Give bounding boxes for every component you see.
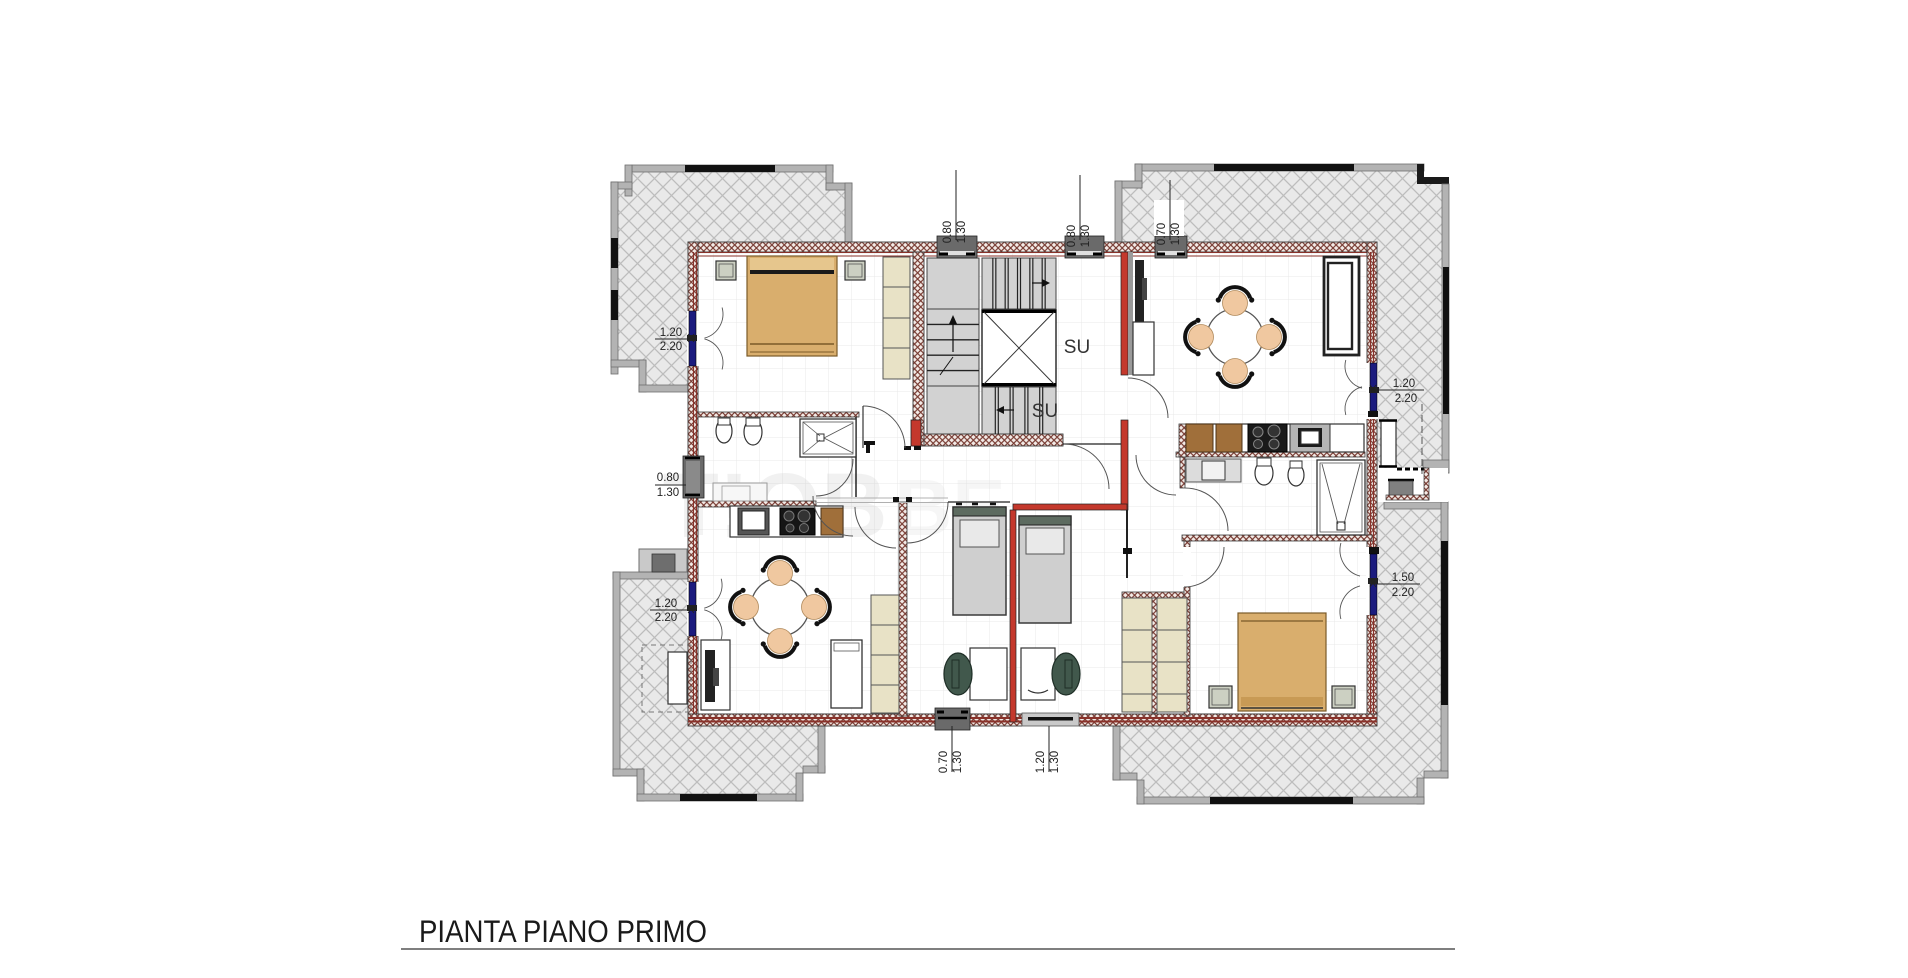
svg-text:SU: SU xyxy=(1064,337,1090,358)
svg-text:1.20: 1.20 xyxy=(1393,378,1415,390)
svg-text:1.30: 1.30 xyxy=(1170,223,1182,245)
svg-text:PIANTA PIANO PRIMO: PIANTA PIANO PRIMO xyxy=(419,913,707,949)
svg-text:0.80: 0.80 xyxy=(657,472,679,484)
svg-text:1.20: 1.20 xyxy=(660,327,682,339)
svg-text:1.30: 1.30 xyxy=(952,751,964,773)
svg-text:SU: SU xyxy=(1032,401,1058,422)
svg-text:1.30: 1.30 xyxy=(1080,225,1092,247)
svg-text:1.30: 1.30 xyxy=(1049,751,1061,773)
svg-text:2.20: 2.20 xyxy=(1395,393,1417,405)
svg-text:2.20: 2.20 xyxy=(1392,587,1414,599)
svg-text:1.50: 1.50 xyxy=(1392,572,1414,584)
svg-text:0.70: 0.70 xyxy=(938,751,950,773)
svg-text:0.80: 0.80 xyxy=(1066,225,1078,247)
svg-text:0.70: 0.70 xyxy=(1156,223,1168,245)
svg-text:2.20: 2.20 xyxy=(660,341,682,353)
svg-text:0.80: 0.80 xyxy=(942,221,954,243)
svg-text:2.20: 2.20 xyxy=(655,612,677,624)
svg-text:1.20: 1.20 xyxy=(655,598,677,610)
svg-text:1.30: 1.30 xyxy=(956,221,968,243)
svg-text:1.20: 1.20 xyxy=(1035,751,1047,773)
svg-text:1.30: 1.30 xyxy=(657,487,679,499)
